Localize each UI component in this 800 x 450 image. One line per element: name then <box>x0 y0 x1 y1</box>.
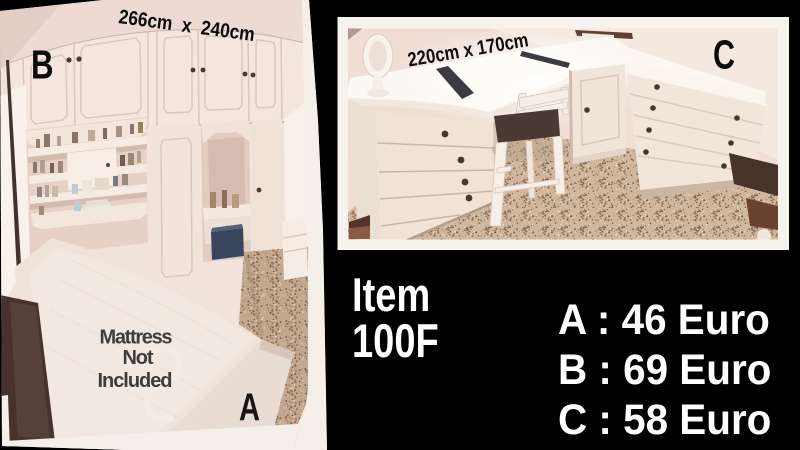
svg-text:Not: Not <box>123 347 154 369</box>
svg-text:Mattress: Mattress <box>100 326 173 348</box>
svg-text:C: C <box>713 31 735 77</box>
svg-text:Included: Included <box>98 370 173 392</box>
svg-text:B: B <box>31 41 54 87</box>
svg-text:A: A <box>239 387 260 430</box>
